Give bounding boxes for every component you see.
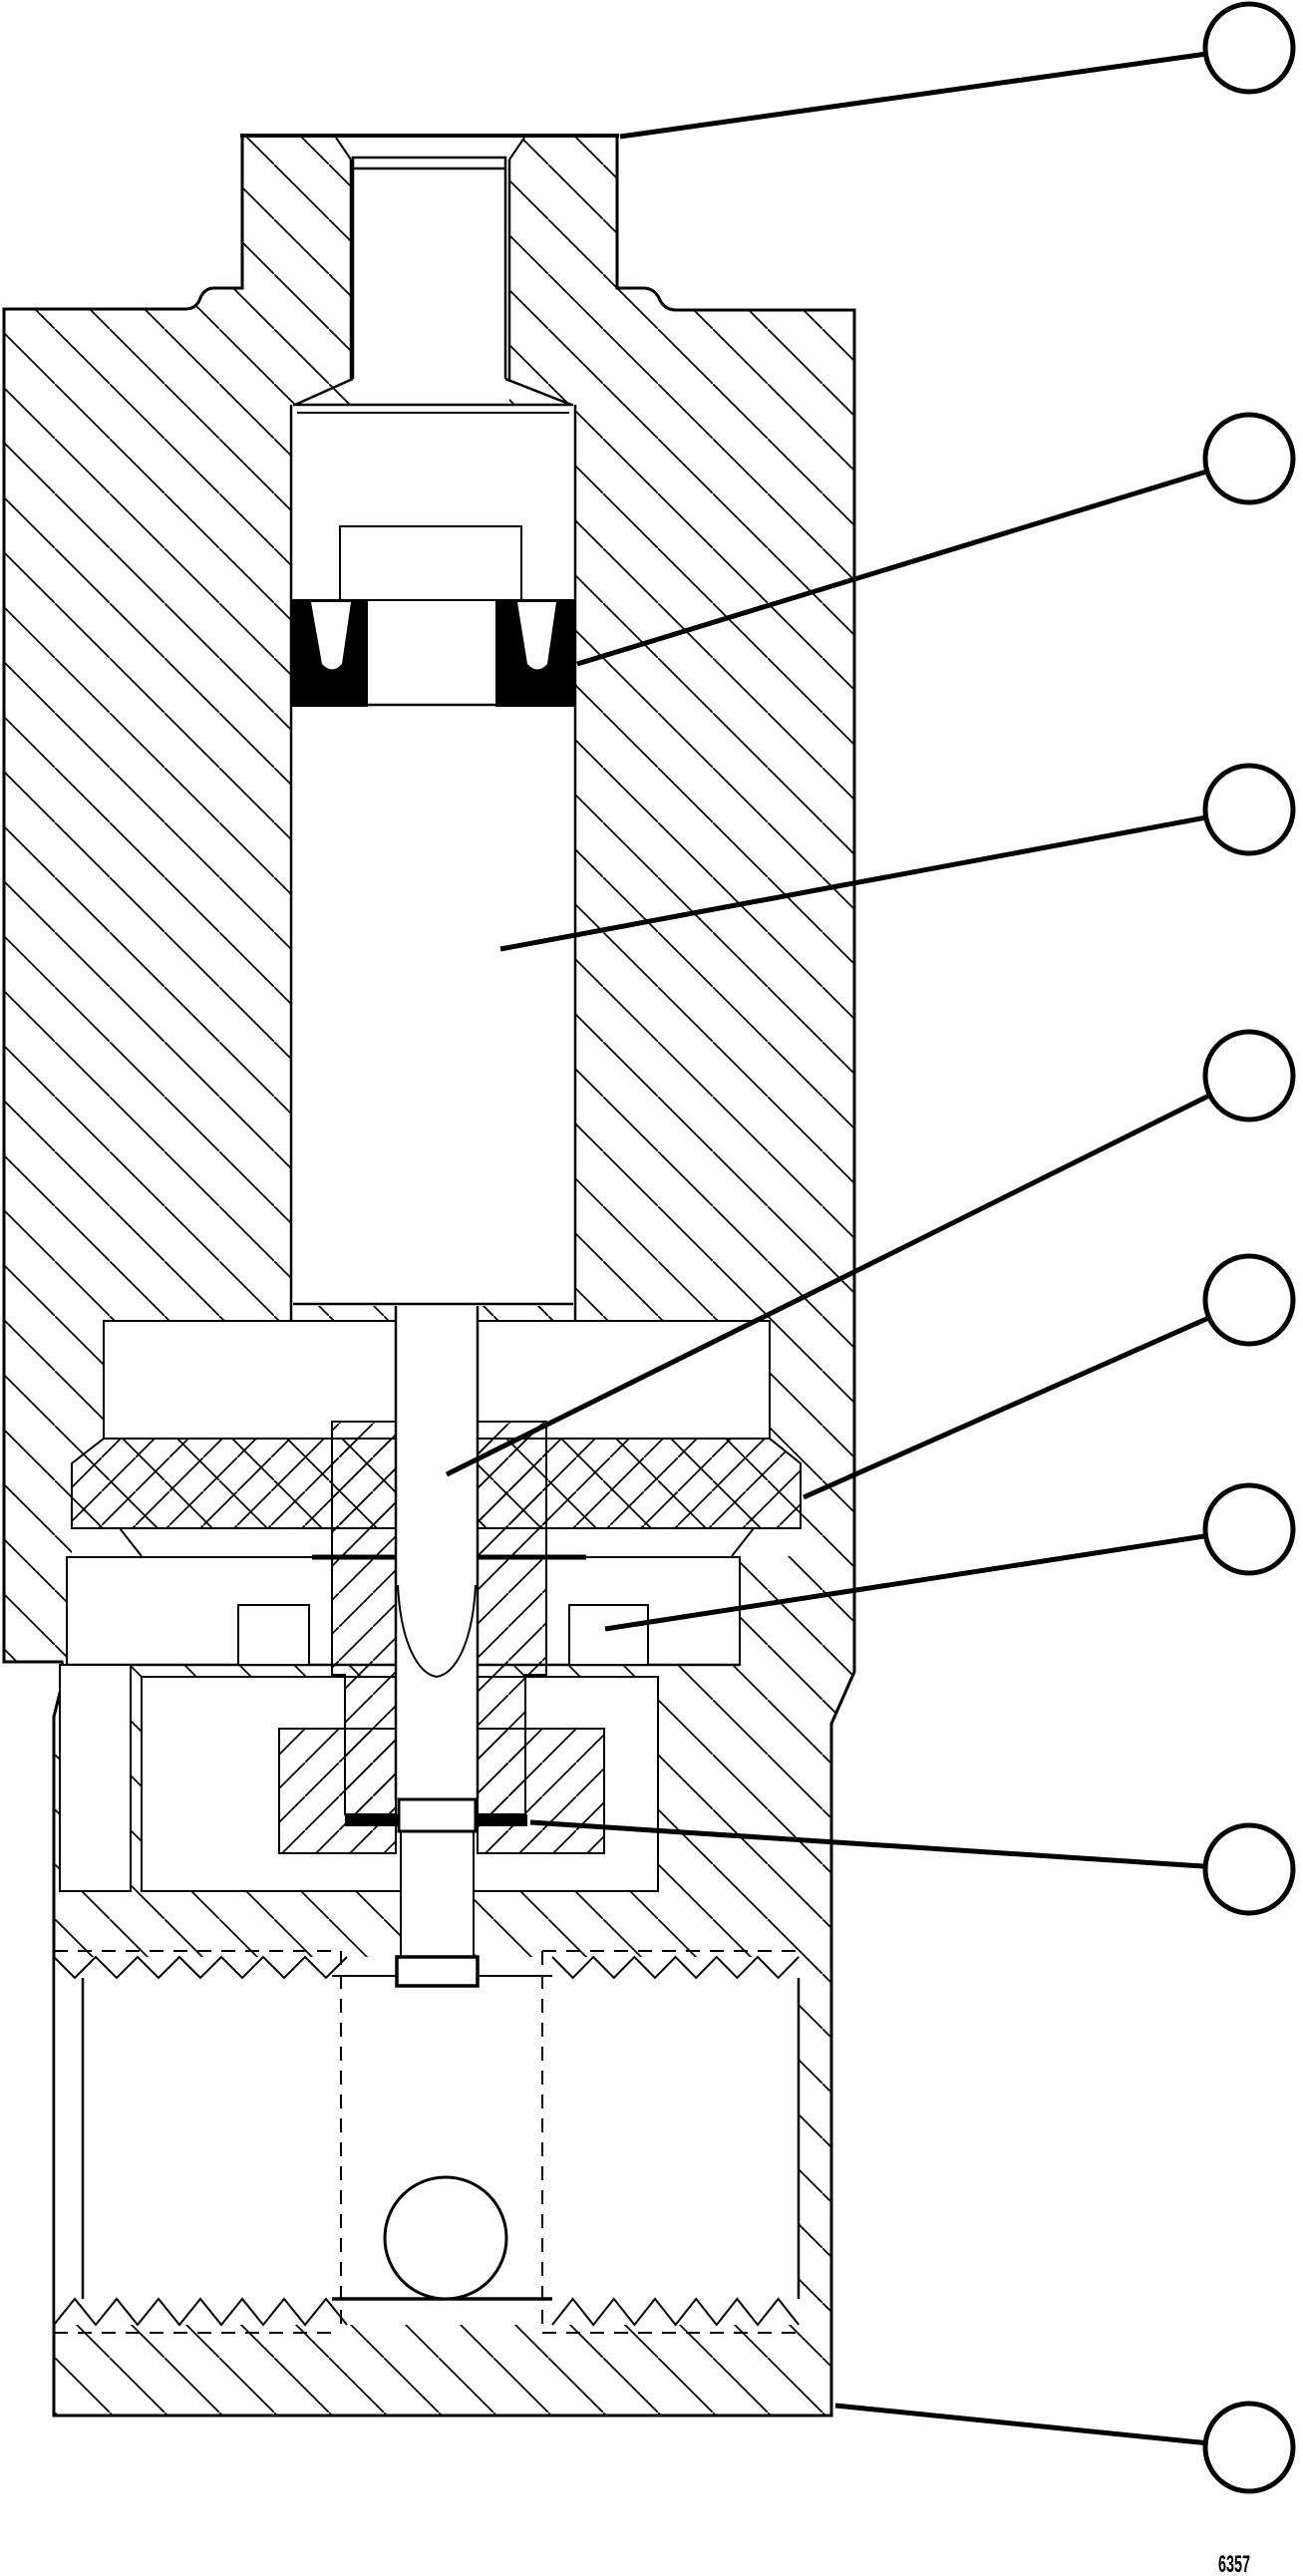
callout-circle-2: [1205, 415, 1293, 502]
spacer-key-left: [238, 1605, 309, 1665]
seal-retainer-groove: [340, 526, 521, 600]
seat-insert: [399, 1799, 476, 1831]
outlet-cavity: [54, 1951, 799, 2333]
check-ball: [385, 2177, 506, 2299]
stem-bottom-cap: [397, 1957, 478, 1986]
callout-circle-8: [1205, 2404, 1293, 2491]
callout-circle-6: [1205, 1485, 1293, 1573]
drawing-canvas: 6357: [0, 0, 1303, 2576]
callout-circle-4: [1205, 1032, 1293, 1120]
callout-circle-7: [1205, 1825, 1293, 1913]
inlet-passage: [60, 1665, 131, 1891]
callout-circle-3: [1205, 766, 1293, 853]
stem-channel: [336, 138, 524, 409]
leader-line-8-outlet-body: [835, 2406, 1249, 2447]
callout-circle-5: [1205, 1256, 1293, 1344]
stamp-text: 6357: [1218, 2551, 1250, 2576]
needle-stem: [396, 1306, 478, 1957]
drawing-stamp: 6357: [1218, 2551, 1250, 2576]
leader-line-1-upper-body-top-edge: [620, 48, 1249, 137]
leader-line-5-bonnet: [804, 1300, 1249, 1497]
callout-circle-1: [1205, 4, 1293, 92]
spacer-key-right: [569, 1605, 648, 1665]
